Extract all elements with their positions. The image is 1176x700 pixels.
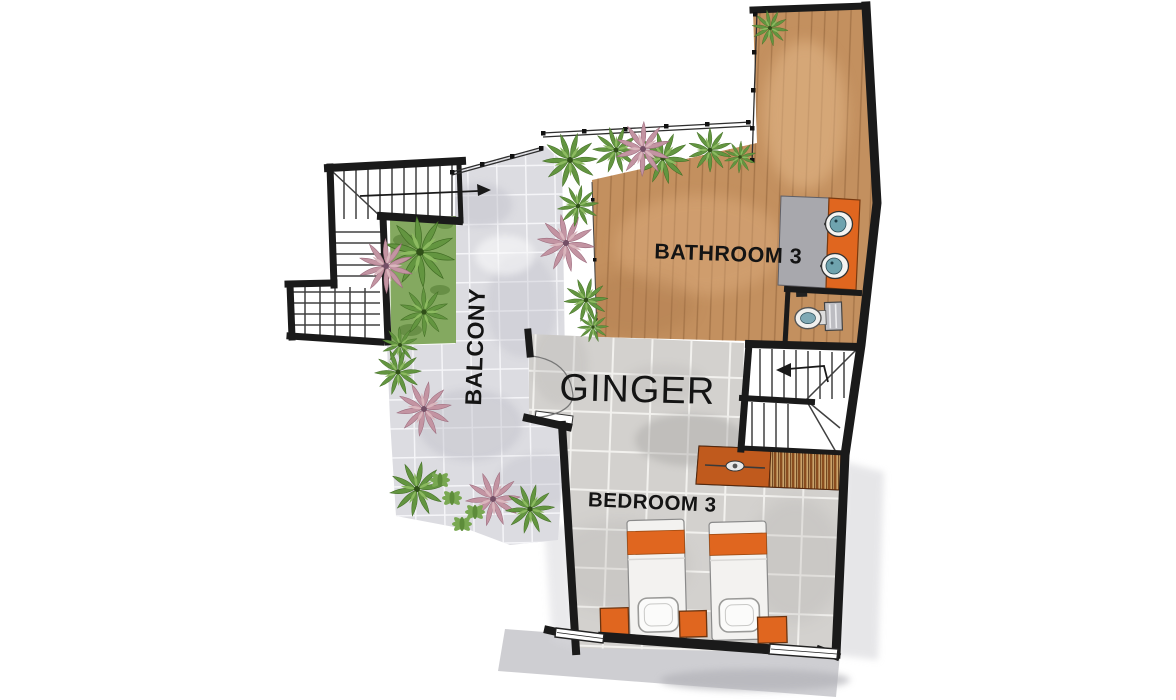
grass-tuft-icon [430, 471, 450, 489]
floor-plan-page: BATHROOM 3 GINGER BEDROOM 3 BALCONY [0, 0, 1176, 700]
terrace-shadow-blotch [660, 669, 850, 691]
nightstand-icon [757, 616, 787, 643]
unit-name-label: GINGER [559, 367, 716, 413]
nightstand-icon [679, 611, 707, 638]
nightstand-icon [600, 608, 629, 637]
grass-tuft-icon [442, 489, 462, 507]
grass-tuft-icon [452, 515, 472, 533]
vanity-counter [778, 196, 829, 288]
vanity-unit [778, 196, 860, 290]
bed-icon [627, 519, 687, 640]
balcony-label: BALCONY [460, 288, 490, 406]
hanging-clothes [769, 449, 843, 490]
floor-plan-drawing: BATHROOM 3 GINGER BEDROOM 3 BALCONY [0, 0, 1176, 700]
